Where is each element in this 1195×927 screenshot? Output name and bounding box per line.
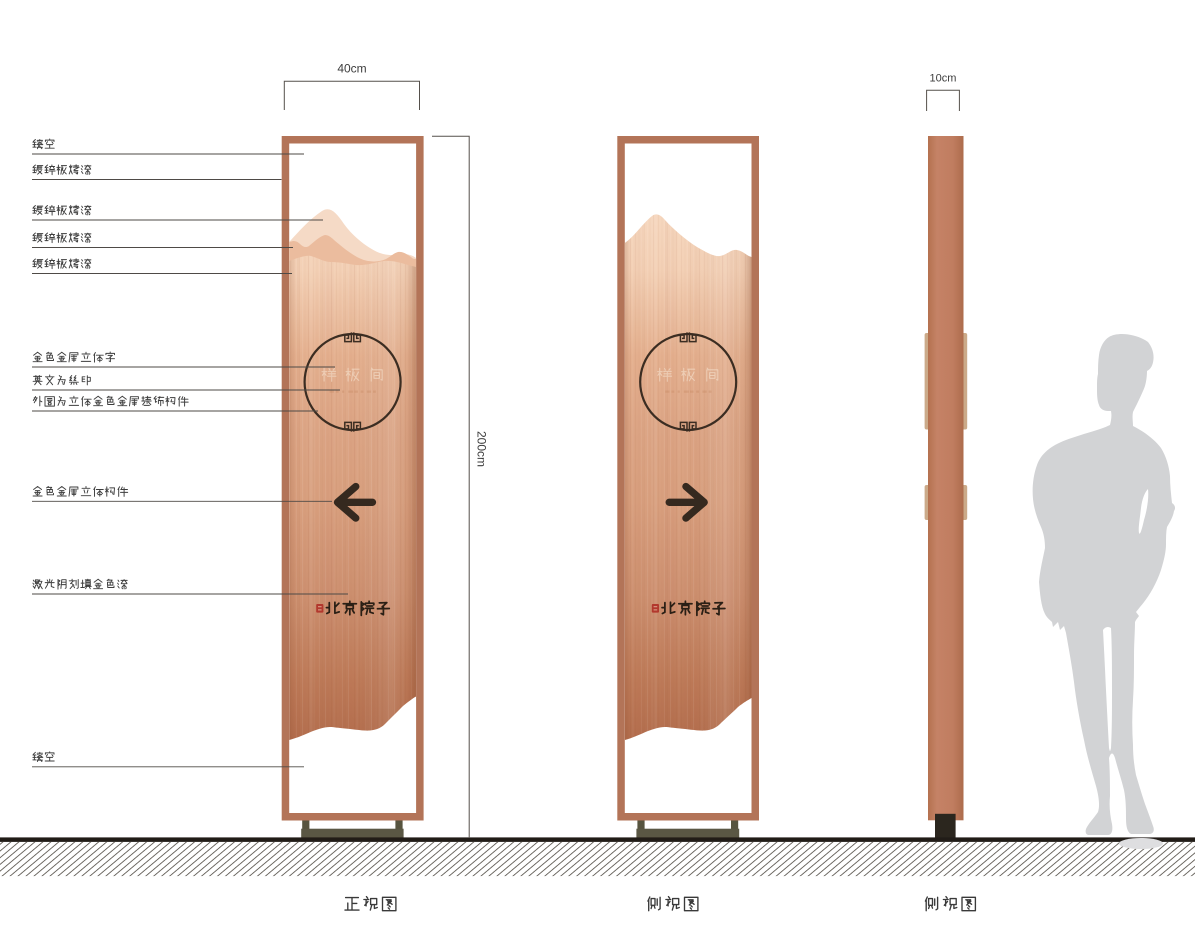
svg-text:200cm: 200cm — [475, 431, 489, 467]
svg-text:40cm: 40cm — [337, 62, 366, 76]
svg-text:10cm: 10cm — [930, 73, 957, 85]
